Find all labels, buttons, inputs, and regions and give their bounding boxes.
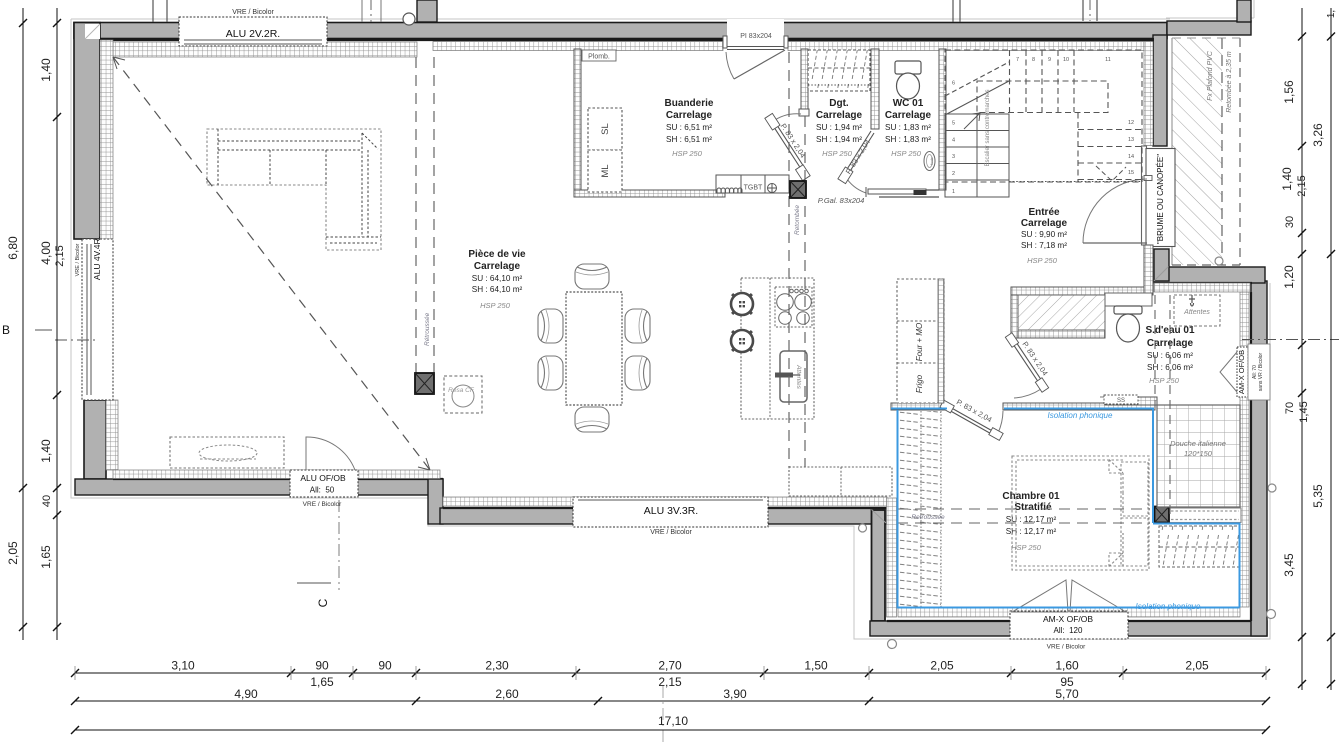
svg-text:C: C [316, 598, 330, 607]
svg-text:Fx Plafond PVC: Fx Plafond PVC [1207, 50, 1214, 101]
svg-text:SH : 6,51 m²: SH : 6,51 m² [666, 135, 712, 144]
svg-text:2,15: 2,15 [54, 245, 66, 266]
svg-text:2: 2 [952, 171, 955, 177]
svg-text:Plomb.: Plomb. [588, 54, 610, 61]
svg-text:4,90: 4,90 [234, 687, 258, 701]
svg-text:5: 5 [952, 121, 955, 127]
svg-text:Douche italienne: Douche italienne [1170, 439, 1226, 448]
svg-text:Carrelage: Carrelage [885, 110, 932, 121]
svg-text:1,60: 1,60 [1055, 659, 1079, 673]
svg-text:fonte: fonte [930, 157, 934, 165]
svg-text:17,10: 17,10 [658, 714, 688, 728]
svg-text:VRE / Bicolor: VRE / Bicolor [303, 501, 342, 508]
svg-text:40: 40 [41, 495, 53, 507]
svg-text:1,40: 1,40 [39, 439, 53, 463]
svg-text:8: 8 [1032, 57, 1035, 63]
svg-text:Carrelage: Carrelage [816, 110, 863, 121]
svg-text:70: 70 [1284, 402, 1296, 414]
svg-text:SU : 1,83 m²: SU : 1,83 m² [885, 123, 931, 132]
svg-text:sans VR / Bicolor: sans VR / Bicolor [1258, 352, 1264, 391]
svg-text:2,05: 2,05 [930, 659, 954, 673]
svg-text:1: 1 [952, 189, 955, 195]
svg-text:Isolation phonique: Isolation phonique [1136, 602, 1201, 611]
svg-text:90: 90 [378, 659, 392, 673]
svg-text:VRE / Bicolor: VRE / Bicolor [232, 9, 274, 16]
svg-text:Chambre 01: Chambre 01 [1002, 491, 1060, 502]
svg-text:SU : 9,90 m²: SU : 9,90 m² [1021, 230, 1067, 239]
svg-text:5,35: 5,35 [1311, 484, 1325, 508]
svg-text:1,40: 1,40 [39, 58, 53, 82]
svg-text:3,45: 3,45 [1282, 553, 1296, 577]
svg-text:Frigo: Frigo [915, 374, 924, 393]
svg-text:Pièce de vie: Pièce de vie [468, 249, 526, 260]
svg-text:1,: 1, [1326, 10, 1337, 18]
svg-text:Retombée à 2,35 m: Retombée à 2,35 m [1226, 51, 1233, 113]
svg-text:2,60: 2,60 [495, 687, 519, 701]
svg-text:HSP 250: HSP 250 [1149, 376, 1180, 385]
svg-text:12: 12 [1128, 120, 1134, 126]
svg-text:30: 30 [1284, 216, 1296, 228]
svg-text:SH : 7,18 m²: SH : 7,18 m² [1021, 241, 1067, 250]
svg-text:7: 7 [1016, 57, 1019, 63]
svg-text:VRE / Bicolor: VRE / Bicolor [75, 243, 81, 276]
svg-text:6: 6 [952, 81, 955, 87]
svg-text:SH : 64,10 m²: SH : 64,10 m² [472, 285, 523, 294]
svg-text:ALU 4V.4R.: ALU 4V.4R. [92, 236, 102, 280]
svg-text:SH : 1,83 m²: SH : 1,83 m² [885, 135, 931, 144]
svg-text:Carrelage: Carrelage [666, 110, 713, 121]
svg-text:AM-X OF/OB: AM-X OF/OB [1043, 614, 1093, 624]
svg-text:Retombée: Retombée [794, 205, 801, 235]
svg-text:120*150: 120*150 [1184, 449, 1213, 458]
svg-text:Four + MO: Four + MO [915, 323, 924, 361]
svg-text:3,10: 3,10 [171, 659, 195, 673]
svg-text:"BRUME OU CANOPÉE": "BRUME OU CANOPÉE" [1156, 154, 1165, 244]
svg-text:2,15: 2,15 [1296, 175, 1308, 196]
svg-text:SU : 64,10 m²: SU : 64,10 m² [472, 274, 523, 283]
svg-text:HSP 250: HSP 250 [822, 149, 853, 158]
svg-text:WC 01: WC 01 [893, 98, 924, 109]
svg-text:Dgt.: Dgt. [829, 98, 849, 109]
svg-text:1,56: 1,56 [1282, 80, 1296, 104]
svg-text:HSP 250: HSP 250 [1027, 256, 1058, 265]
svg-text:10: 10 [1063, 57, 1069, 63]
svg-text:Carrelage: Carrelage [474, 261, 521, 272]
svg-text:Entrée: Entrée [1028, 207, 1060, 218]
svg-text:ML: ML [600, 164, 611, 177]
svg-text:VRE / Bicolor: VRE / Bicolor [1047, 644, 1086, 651]
svg-text:Attentes: Attentes [1183, 309, 1210, 316]
svg-text:Résa CF: Résa CF [448, 387, 475, 394]
svg-text:All: 120: All: 120 [1054, 626, 1083, 635]
svg-text:ALU 3V.3R.: ALU 3V.3R. [644, 505, 698, 517]
svg-text:P.Gal. 83x204: P.Gal. 83x204 [818, 196, 865, 205]
svg-text:VRE / Bicolor: VRE / Bicolor [650, 529, 692, 536]
svg-text:2,15: 2,15 [658, 675, 682, 689]
svg-text:SS: SS [1117, 398, 1125, 404]
svg-text:4,00: 4,00 [39, 241, 53, 265]
svg-text:ALU OF/OB: ALU OF/OB [300, 473, 346, 483]
svg-text:1,65: 1,65 [39, 545, 53, 569]
svg-text:11: 11 [1105, 57, 1111, 63]
svg-text:SU : 1,94 m²: SU : 1,94 m² [816, 123, 862, 132]
svg-text:1,20: 1,20 [1282, 265, 1296, 289]
svg-text:Rétroussée: Rétroussée [424, 312, 431, 346]
svg-text:SU : 6,51 m²: SU : 6,51 m² [666, 123, 712, 132]
svg-text:SH : 1,94 m²: SH : 1,94 m² [816, 135, 862, 144]
svg-text:6,80: 6,80 [6, 236, 20, 260]
svg-text:2,70: 2,70 [658, 659, 682, 673]
svg-text:4: 4 [952, 138, 955, 144]
svg-text:3,26: 3,26 [1311, 123, 1325, 147]
svg-text:B: B [2, 323, 10, 337]
svg-text:3,90: 3,90 [723, 687, 747, 701]
svg-text:TGBT: TGBT [744, 185, 763, 192]
svg-text:Attentes: Attentes [795, 364, 802, 390]
svg-text:5,70: 5,70 [1055, 687, 1079, 701]
svg-text:3: 3 [952, 154, 955, 160]
svg-text:15: 15 [1128, 170, 1134, 176]
svg-text:9: 9 [1048, 57, 1051, 63]
svg-text:SH : 12,17 m²: SH : 12,17 m² [1006, 527, 1057, 536]
svg-text:90: 90 [315, 659, 329, 673]
svg-text:ALU 2V.2R.: ALU 2V.2R. [226, 28, 280, 40]
svg-text:2,05: 2,05 [6, 541, 20, 565]
svg-text:1,50: 1,50 [804, 659, 828, 673]
svg-text:Isolation phonique: Isolation phonique [1048, 411, 1113, 420]
svg-text:Stratifié: Stratifié [1014, 502, 1052, 513]
svg-text:14: 14 [1128, 154, 1134, 160]
svg-text:Escalier sans contremarches: Escalier sans contremarches [985, 89, 991, 166]
svg-text:2,30: 2,30 [485, 659, 509, 673]
svg-text:1,45: 1,45 [1298, 401, 1310, 422]
svg-text:1,40: 1,40 [1280, 167, 1294, 191]
svg-text:Carrelage: Carrelage [1021, 218, 1068, 229]
svg-text:Buanderie: Buanderie [665, 98, 714, 109]
svg-text:HSP 250: HSP 250 [891, 149, 922, 158]
svg-text:2,05: 2,05 [1185, 659, 1209, 673]
svg-text:SL: SL [600, 123, 611, 135]
svg-text:AM-X OF/OB: AM-X OF/OB [1237, 350, 1246, 394]
svg-text:PI 83x204: PI 83x204 [740, 33, 772, 40]
svg-text:HSP 250: HSP 250 [480, 301, 511, 310]
svg-text:All: 50: All: 50 [310, 486, 335, 495]
svg-text:Retroussée: Retroussée [911, 514, 945, 521]
svg-text:HSP 250: HSP 250 [672, 149, 703, 158]
svg-text:13: 13 [1128, 137, 1134, 143]
svg-text:1,65: 1,65 [310, 675, 334, 689]
